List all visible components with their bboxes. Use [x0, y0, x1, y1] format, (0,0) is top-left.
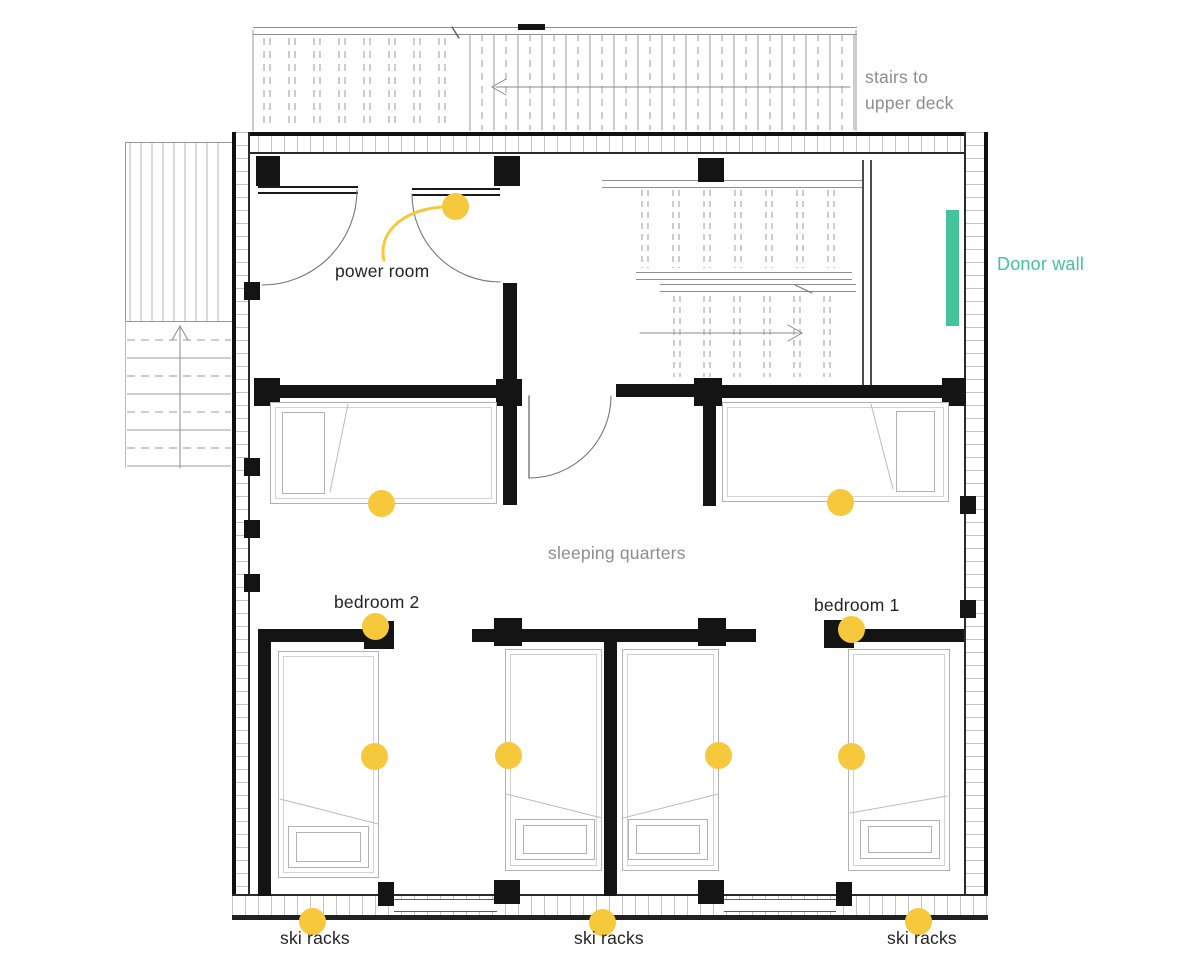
floor-plan-canvas: stairs to upper deck power room Donor wa…	[0, 0, 1200, 976]
label-stairs-line2: upper deck	[865, 93, 954, 113]
label-stairs-line1: stairs to	[865, 67, 928, 87]
label-power-room: power room	[335, 261, 429, 282]
label-ski-racks-left: ski racks	[280, 928, 350, 949]
label-bedroom-2: bedroom 2	[334, 592, 419, 613]
label-sleeping-quarters: sleeping quarters	[548, 543, 686, 564]
label-bedroom-1: bedroom 1	[814, 595, 899, 616]
label-donor-wall: Donor wall	[997, 254, 1084, 275]
stairs-and-linework-drawing	[0, 0, 1200, 976]
label-ski-racks-center: ski racks	[574, 928, 644, 949]
label-stairs-upper-deck: stairs to upper deck	[865, 64, 954, 116]
label-ski-racks-right: ski racks	[887, 928, 957, 949]
